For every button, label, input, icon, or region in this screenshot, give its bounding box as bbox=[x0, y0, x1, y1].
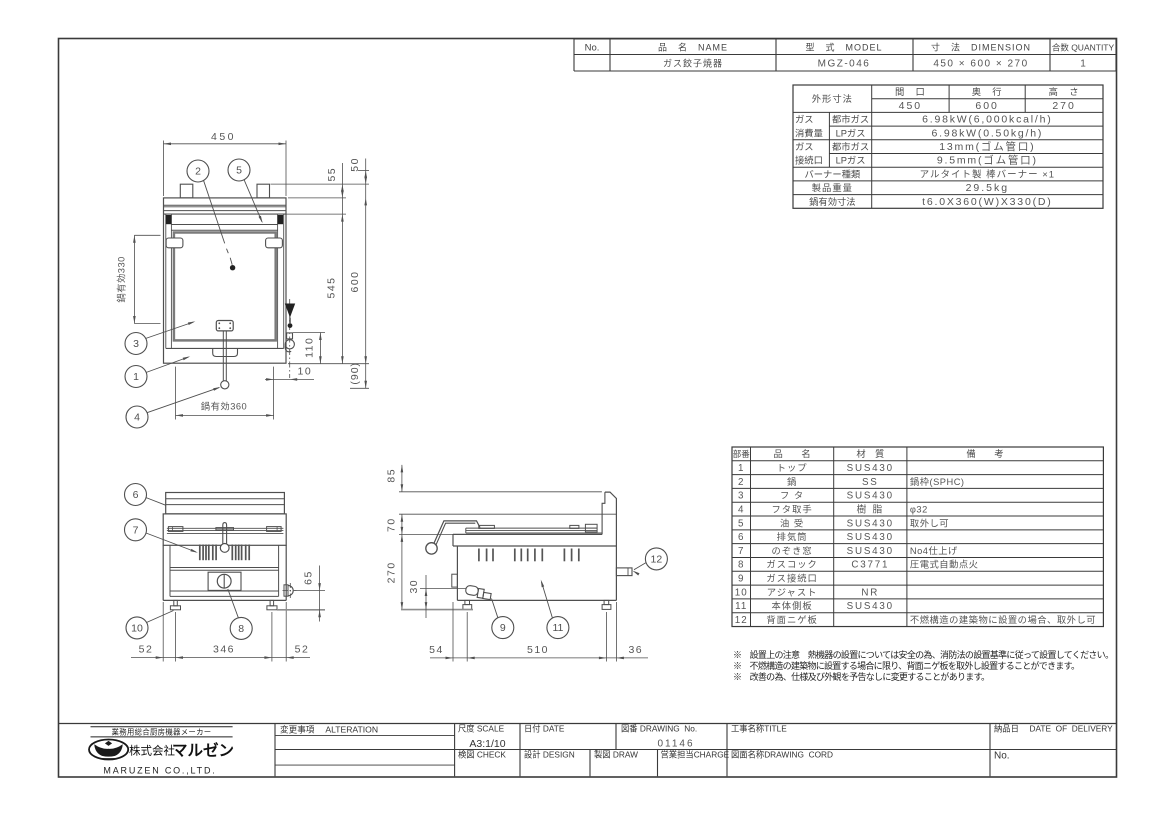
svg-text:フタ取手: フタ取手 bbox=[771, 503, 812, 514]
svg-text:30: 30 bbox=[408, 579, 420, 594]
svg-text:バーナー種類: バーナー種類 bbox=[804, 169, 860, 179]
svg-text:52: 52 bbox=[295, 644, 310, 656]
svg-text:No4仕上げ: No4仕上げ bbox=[910, 545, 958, 556]
svg-text:製図 DRAW: 製図 DRAW bbox=[594, 750, 638, 760]
svg-text:SUS430: SUS430 bbox=[847, 546, 894, 557]
svg-text:ガス接続口: ガス接続口 bbox=[766, 572, 818, 583]
svg-text:C3771: C3771 bbox=[851, 560, 889, 571]
svg-text:LPガス: LPガス bbox=[836, 156, 866, 166]
svg-text:7: 7 bbox=[133, 524, 139, 536]
svg-text:70: 70 bbox=[385, 517, 397, 532]
svg-text:MARUZEN CO.,LTD.: MARUZEN CO.,LTD. bbox=[103, 766, 216, 776]
svg-text:ガス餃子焼器: ガス餃子焼器 bbox=[663, 58, 723, 69]
svg-text:6.98kW(0.50kg/h): 6.98kW(0.50kg/h) bbox=[932, 127, 1044, 139]
svg-text:SUS430: SUS430 bbox=[847, 532, 894, 543]
svg-text:52: 52 bbox=[139, 644, 154, 656]
svg-text:NR: NR bbox=[861, 587, 879, 598]
svg-text:型 式 MODEL: 型 式 MODEL bbox=[805, 42, 882, 53]
svg-text:ガス: ガス bbox=[795, 115, 814, 125]
svg-text:450: 450 bbox=[211, 131, 236, 143]
svg-text:鍋枠(SPHC): 鍋枠(SPHC) bbox=[910, 476, 965, 487]
svg-text:図面名称DRAWING CORD: 図面名称DRAWING CORD bbox=[731, 750, 833, 760]
svg-text:9.5mm(ゴム管口): 9.5mm(ゴム管口) bbox=[937, 154, 1038, 167]
svg-text:346: 346 bbox=[213, 644, 235, 656]
svg-text:間 口: 間 口 bbox=[895, 87, 926, 97]
svg-text:消費量: 消費量 bbox=[795, 127, 823, 138]
svg-text:SUS430: SUS430 bbox=[847, 518, 894, 529]
svg-text:600: 600 bbox=[975, 100, 999, 112]
svg-text:業務用総合厨房機器メーカー: 業務用総合厨房機器メーカー bbox=[112, 727, 212, 736]
svg-text:t6.0X360(W)X330(D): t6.0X360(W)X330(D) bbox=[922, 196, 1052, 208]
svg-text:55: 55 bbox=[326, 167, 338, 182]
svg-text:本体側板: 本体側板 bbox=[771, 600, 812, 611]
svg-text:No.: No. bbox=[994, 751, 1010, 762]
svg-text:6.98kW(6,000kcal/h): 6.98kW(6,000kcal/h) bbox=[922, 114, 1053, 126]
svg-text:合数 QUANTITY: 合数 QUANTITY bbox=[1052, 43, 1115, 53]
svg-text:11: 11 bbox=[735, 601, 747, 612]
svg-text:450: 450 bbox=[899, 100, 923, 112]
svg-text:変更事項 ALTERATION: 変更事項 ALTERATION bbox=[280, 723, 378, 734]
svg-text:外形寸法: 外形寸法 bbox=[812, 93, 853, 104]
svg-text:樹 脂: 樹 脂 bbox=[856, 502, 884, 515]
svg-text:※ 不燃構造の建築物に設置する場合に限り、背面ニゲ板を取外し: ※ 不燃構造の建築物に設置する場合に限り、背面ニゲ板を取外し設置することができま… bbox=[733, 660, 1080, 671]
svg-text:SUS430: SUS430 bbox=[847, 491, 894, 502]
svg-text:フ タ: フ タ bbox=[780, 491, 804, 501]
svg-text:3: 3 bbox=[738, 491, 744, 502]
svg-text:ガスコック: ガスコック bbox=[766, 560, 818, 570]
svg-text:5: 5 bbox=[236, 165, 242, 177]
svg-text:36: 36 bbox=[628, 644, 643, 656]
svg-text:品 名: 品 名 bbox=[773, 448, 810, 459]
svg-text:8: 8 bbox=[238, 623, 244, 635]
svg-text:奥 行: 奥 行 bbox=[972, 86, 1003, 97]
svg-text:アルタイト製 棒バーナー ×1: アルタイト製 棒バーナー ×1 bbox=[920, 168, 1056, 180]
svg-text:※ 設置上の注意 熱機器の設置については安全の為、消防法の設: ※ 設置上の注意 熱機器の設置については安全の為、消防法の設置基準に従って設置し… bbox=[733, 649, 1114, 660]
svg-text:65: 65 bbox=[303, 570, 315, 585]
svg-text:備 考: 備 考 bbox=[966, 448, 1003, 459]
svg-text:検図 CHECK: 検図 CHECK bbox=[458, 750, 506, 760]
svg-text:270: 270 bbox=[385, 561, 397, 583]
svg-text:φ32: φ32 bbox=[910, 504, 928, 514]
svg-text:2: 2 bbox=[738, 477, 744, 488]
svg-text:取外し可: 取外し可 bbox=[910, 517, 949, 528]
svg-text:株式会社: 株式会社 bbox=[129, 744, 175, 758]
svg-text:No.: No. bbox=[585, 43, 600, 54]
svg-text:1: 1 bbox=[738, 463, 744, 474]
svg-text:450 × 600 × 270: 450 × 600 × 270 bbox=[933, 59, 1028, 70]
svg-text:鍋有効330: 鍋有効330 bbox=[115, 256, 126, 302]
svg-text:マルゼン: マルゼン bbox=[172, 741, 234, 760]
svg-text:600: 600 bbox=[349, 270, 361, 292]
svg-text:13mm(ゴム管口): 13mm(ゴム管口) bbox=[939, 140, 1035, 153]
svg-text:12: 12 bbox=[735, 615, 748, 626]
svg-text:9: 9 bbox=[500, 622, 506, 634]
svg-text:都市ガス: 都市ガス bbox=[832, 141, 869, 152]
svg-text:4: 4 bbox=[738, 504, 744, 515]
svg-text:設計 DESIGN: 設計 DESIGN bbox=[524, 750, 575, 760]
svg-text:のぞき窓: のぞき窓 bbox=[771, 545, 812, 556]
svg-text:6: 6 bbox=[133, 489, 139, 501]
svg-text:5: 5 bbox=[738, 518, 744, 529]
svg-text:10: 10 bbox=[735, 587, 748, 598]
svg-text:アジャスト: アジャスト bbox=[767, 587, 818, 597]
svg-text:部番: 部番 bbox=[733, 449, 750, 459]
svg-text:3: 3 bbox=[133, 338, 139, 350]
svg-text:50: 50 bbox=[349, 157, 361, 172]
svg-text:270: 270 bbox=[1052, 100, 1076, 112]
svg-text:29.5kg: 29.5kg bbox=[966, 182, 1010, 194]
svg-text:SUS430: SUS430 bbox=[847, 463, 894, 474]
svg-text:A3:1/10: A3:1/10 bbox=[469, 738, 505, 750]
svg-text:トップ: トップ bbox=[777, 463, 808, 473]
svg-text:図番 DRAWING No.: 図番 DRAWING No. bbox=[621, 724, 697, 734]
svg-text:営業担当CHARGE: 営業担当CHARGE bbox=[661, 750, 730, 760]
svg-text:11: 11 bbox=[552, 622, 563, 634]
svg-text:9: 9 bbox=[738, 573, 744, 584]
svg-text:油 受: 油 受 bbox=[780, 517, 804, 528]
svg-text:1: 1 bbox=[1080, 59, 1086, 70]
svg-text:鍋: 鍋 bbox=[787, 476, 797, 487]
svg-text:545: 545 bbox=[326, 276, 338, 298]
svg-text:納品日 DATE OF DELIVERY: 納品日 DATE OF DELIVERY bbox=[994, 724, 1113, 734]
svg-text:鍋有効360: 鍋有効360 bbox=[201, 400, 247, 411]
svg-text:85: 85 bbox=[385, 468, 397, 483]
svg-text:高 さ: 高 さ bbox=[1049, 86, 1080, 97]
svg-text:寸 法 DIMENSION: 寸 法 DIMENSION bbox=[931, 42, 1031, 53]
svg-text:6: 6 bbox=[738, 532, 744, 543]
svg-text:7: 7 bbox=[738, 546, 744, 557]
svg-text:10: 10 bbox=[131, 623, 143, 635]
svg-text:01146: 01146 bbox=[657, 739, 694, 750]
svg-text:510: 510 bbox=[527, 644, 549, 656]
svg-text:54: 54 bbox=[429, 644, 444, 656]
svg-text:12: 12 bbox=[651, 554, 663, 566]
svg-text:接続口: 接続口 bbox=[795, 155, 823, 166]
svg-text:1: 1 bbox=[133, 371, 139, 383]
svg-text:2: 2 bbox=[195, 166, 201, 178]
svg-text:SS: SS bbox=[862, 477, 879, 488]
svg-text:8: 8 bbox=[738, 560, 744, 571]
svg-text:尺度 SCALE: 尺度 SCALE bbox=[458, 724, 505, 734]
svg-text:品 名 NAME: 品 名 NAME bbox=[658, 42, 728, 53]
svg-text:LPガス: LPガス bbox=[836, 128, 866, 138]
svg-text:圧電式自動点火: 圧電式自動点火 bbox=[910, 559, 979, 570]
svg-text:4: 4 bbox=[134, 412, 140, 424]
svg-text:都市ガス: 都市ガス bbox=[832, 114, 869, 125]
svg-text:110: 110 bbox=[303, 337, 315, 358]
svg-text:※ 改善の為、仕様及び外観を予告なしに変更することがあります: ※ 改善の為、仕様及び外観を予告なしに変更することがあります。 bbox=[733, 671, 990, 682]
svg-text:不燃構造の建築物に設置の場合、取外し可: 不燃構造の建築物に設置の場合、取外し可 bbox=[910, 614, 1096, 625]
svg-text:排気筒: 排気筒 bbox=[777, 531, 808, 542]
svg-text:10: 10 bbox=[298, 366, 313, 378]
svg-text:工事名称TITLE: 工事名称TITLE bbox=[731, 724, 787, 734]
svg-text:ガス: ガス bbox=[795, 142, 814, 152]
svg-text:鍋有効寸法: 鍋有効寸法 bbox=[809, 196, 856, 207]
svg-text:MGZ-046: MGZ-046 bbox=[818, 59, 871, 70]
svg-text:SUS430: SUS430 bbox=[847, 601, 894, 612]
svg-text:製品重量: 製品重量 bbox=[812, 182, 853, 193]
svg-text:材 質: 材 質 bbox=[856, 448, 884, 459]
svg-text:日付 DATE: 日付 DATE bbox=[524, 724, 565, 734]
svg-text:背面ニゲ板: 背面ニゲ板 bbox=[766, 614, 818, 625]
svg-text:(90): (90) bbox=[349, 362, 361, 385]
